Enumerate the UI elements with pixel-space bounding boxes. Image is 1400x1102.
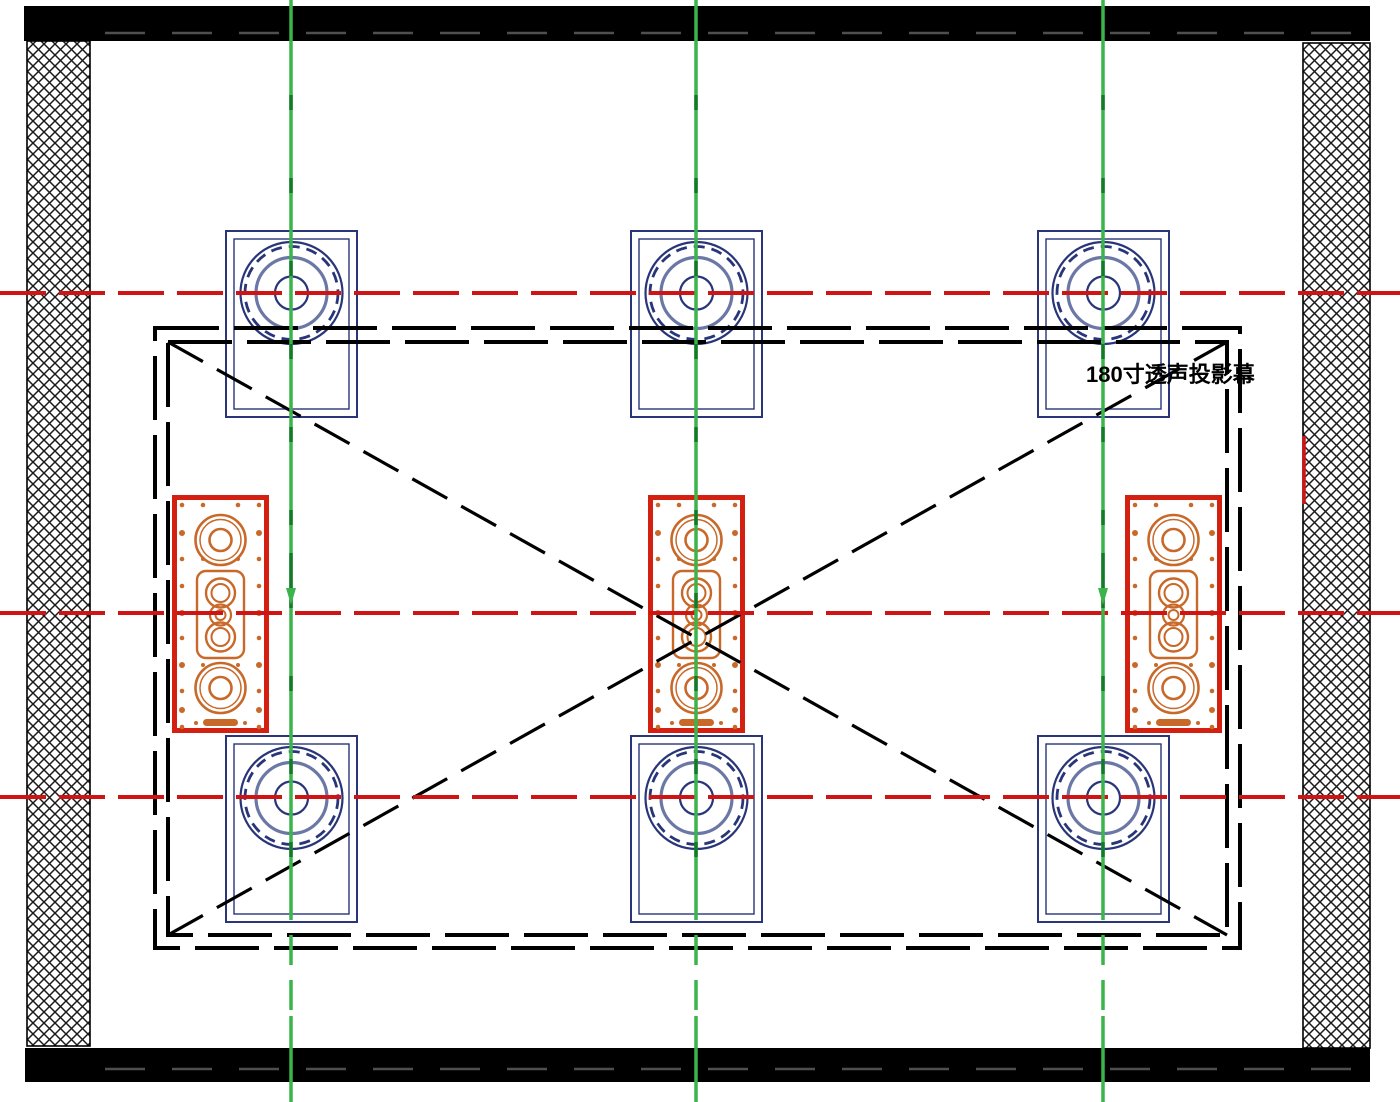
speaker-layout-drawing: 180寸透声投影幕 [0, 0, 1400, 1102]
down-arrow-icon [286, 588, 296, 605]
wall-right-hatched [1303, 43, 1370, 1048]
wall-left-hatched [27, 41, 90, 1046]
screen-size-label: 180寸透声投影幕 [1086, 362, 1256, 387]
drawing-svg: 180寸透声投影幕 [0, 0, 1400, 1102]
down-arrow-icon [1098, 588, 1108, 605]
